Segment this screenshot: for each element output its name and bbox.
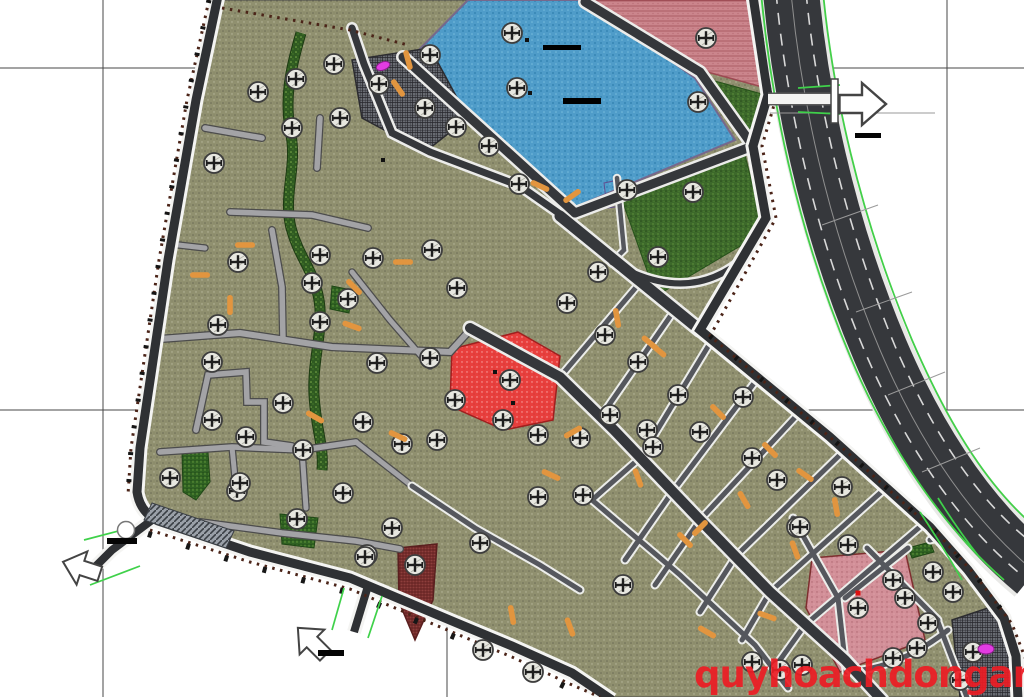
tree-symbol [523,662,543,682]
tree-symbol [643,437,663,457]
tree-symbol [293,440,313,460]
tree-symbol [310,312,330,332]
black-marker [493,370,497,374]
tree-symbol [790,517,810,537]
tree-symbol [617,180,637,200]
tree-symbol [330,108,350,128]
tree-symbol [202,352,222,372]
tree-symbol [528,487,548,507]
tree-symbol [302,273,322,293]
tree-symbol [415,98,435,118]
tree-symbol [204,153,224,173]
tree-symbol [202,410,222,430]
black-marker [511,401,515,405]
tree-symbol [767,470,787,490]
tree-symbol [573,485,593,505]
tree-symbol [648,247,668,267]
tree-symbol [446,117,466,137]
red-marker [856,591,861,596]
tree-symbol [286,69,306,89]
scale-bar [855,133,881,138]
tree-symbol [668,385,688,405]
tree-symbol [479,136,499,156]
tree-symbol [883,570,903,590]
tree-symbol [502,23,522,43]
tree-symbol [447,278,467,298]
tree-symbol [470,533,490,553]
tree-symbol [310,245,330,265]
lake-annotation-bar [563,98,601,104]
tree-symbol [405,555,425,575]
tree-symbol [918,613,938,633]
tree-symbol [427,430,447,450]
tree-symbol [367,353,387,373]
tree-symbol [557,293,577,313]
tree-symbol [528,425,548,445]
tree-symbol [473,640,493,660]
tree-symbol [420,45,440,65]
scale-bar [107,538,137,544]
tree-symbol [742,448,762,468]
tree-symbol [420,348,440,368]
tree-symbol [690,422,710,442]
black-marker [528,91,532,95]
tree-symbol [363,248,383,268]
tree-symbol [160,468,180,488]
tree-symbol [696,28,716,48]
lake-annotation-bar [543,45,581,50]
exit-arrow-southwest [58,545,106,590]
tree-symbol [236,427,256,447]
tree-symbol [382,518,402,538]
tree-symbol [353,412,373,432]
exit-signpost [831,79,838,123]
tree-symbol [273,393,293,413]
tree-symbol [493,410,513,430]
tree-symbol [500,370,520,390]
orange-path-mark [190,272,210,278]
tree-symbol [248,82,268,102]
watermark-text: quyhoachdonganh.com [694,653,1024,696]
orange-path-mark [227,295,233,315]
black-marker [525,38,529,42]
tree-symbol [688,92,708,112]
tree-symbol [923,562,943,582]
green-boundary-accent [332,588,344,630]
tree-symbol [445,390,465,410]
tree-symbol [369,74,389,94]
tree-symbol [507,78,527,98]
tree-symbol [733,387,753,407]
tree-symbol [832,477,852,497]
tree-symbol [613,575,633,595]
tree-symbol [422,240,442,260]
tree-symbol [282,118,302,138]
road-lane-2 [317,118,320,168]
tree-symbol [228,252,248,272]
tree-symbol [324,54,344,74]
tree-symbol [683,182,703,202]
tree-symbol [588,262,608,282]
orange-path-mark [393,259,413,265]
tree-symbol [230,473,250,493]
tree-symbol [333,483,353,503]
scale-bar [318,650,344,656]
tree-symbol [628,352,648,372]
orange-path-mark [235,242,255,248]
exit-arrow-east [840,83,887,125]
tree-symbol [338,289,358,309]
tree-symbol [838,535,858,555]
black-marker [381,158,385,162]
junction-circle [118,522,135,539]
tree-symbol [895,588,915,608]
tree-symbol [943,582,963,602]
tree-symbol [509,174,529,194]
tree-symbol [208,315,228,335]
tree-symbol [848,598,868,618]
tree-symbol [355,547,375,567]
tree-symbol [595,325,615,345]
exit-arrow-south [285,615,337,667]
site-plan-map: quyhoachdonganh.com [0,0,1024,697]
master-plan-canvas [0,0,1024,697]
tree-symbol [600,405,620,425]
tree-symbol [287,509,307,529]
